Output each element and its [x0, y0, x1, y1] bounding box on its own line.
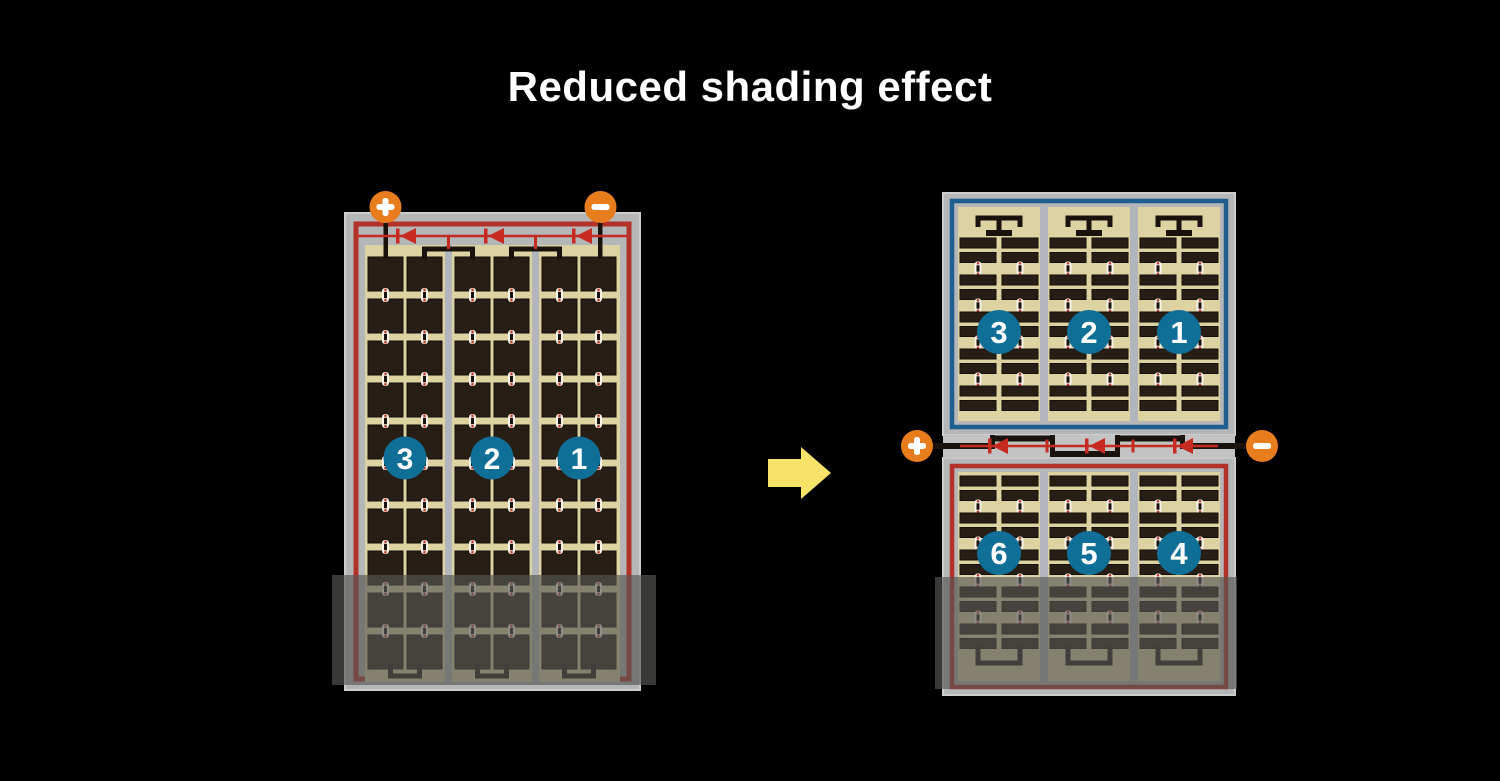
shade-overlay: [935, 577, 1237, 689]
half-cut-cell: [960, 275, 996, 285]
cell-connector-bar: [597, 418, 600, 424]
half-cut-cell: [1140, 386, 1176, 396]
junction-tick: [1046, 440, 1049, 453]
half-cut-cell: [1002, 275, 1038, 285]
half-cut-cell: [1182, 275, 1218, 285]
cell-connector-dot: [1019, 262, 1022, 265]
bypass-diode-icon: [572, 229, 576, 244]
cell-connector-dot: [510, 541, 513, 544]
cell-connector-bar: [1157, 265, 1160, 271]
half-cut-cell: [1002, 364, 1038, 374]
cell-connector-bar: [471, 292, 474, 298]
cell-connector-bar: [423, 544, 426, 550]
cell-connector-dot: [1199, 574, 1202, 577]
half-cut-cell: [1002, 513, 1038, 523]
solar-cell: [407, 257, 442, 291]
cell-connector-bar: [384, 544, 387, 550]
cell-connector-dot: [558, 499, 561, 502]
cell-connector-bar: [1199, 503, 1202, 509]
solar-cell: [368, 341, 403, 375]
solar-cell: [407, 299, 442, 333]
cell-connector-dot: [471, 415, 474, 418]
cell-connector-dot: [1067, 574, 1070, 577]
top-string-connector: [1087, 218, 1092, 232]
top-string-connector: [1076, 230, 1102, 236]
solar-cell: [494, 383, 529, 417]
half-cut-cell: [960, 253, 996, 263]
cell-connector-dot: [597, 341, 600, 344]
cell-connector-dot: [423, 299, 426, 302]
cell-connector-dot: [558, 425, 561, 428]
terminal-symbol: [914, 437, 920, 455]
cell-connector-dot: [558, 341, 561, 344]
cell-connector-dot: [597, 499, 600, 502]
half-cut-cell: [1092, 386, 1128, 396]
half-cut-cell: [960, 290, 996, 300]
half-cut-cell: [1002, 238, 1038, 248]
cell-connector-dot: [597, 551, 600, 554]
cell-connector-dot: [1157, 574, 1160, 577]
cell-connector-dot: [510, 383, 513, 386]
cell-connector-bar: [597, 502, 600, 508]
cell-connector-bar: [558, 502, 561, 508]
half-cut-cell: [1002, 290, 1038, 300]
half-cut-cell: [960, 513, 996, 523]
cell-connector-bar: [558, 292, 561, 298]
cell-connector-dot: [510, 289, 513, 292]
cell-connector-bar: [597, 292, 600, 298]
transition-arrow: [762, 442, 837, 504]
half-cut-cell: [1182, 364, 1218, 374]
cell-connector-bar: [384, 376, 387, 382]
cell-connector-dot: [1157, 537, 1160, 540]
cell-connector-dot: [1019, 500, 1022, 503]
cell-connector-bar: [1067, 503, 1070, 509]
cell-connector-bar: [1157, 503, 1160, 509]
half-cut-cell: [960, 238, 996, 248]
half-cut-cell: [1140, 253, 1176, 263]
cell-connector-dot: [471, 383, 474, 386]
cell-connector-dot: [384, 383, 387, 386]
half-cut-cell: [1050, 401, 1086, 411]
cell-connector-dot: [558, 551, 561, 554]
solar-cell: [494, 257, 529, 291]
string-number: 4: [1170, 536, 1188, 571]
solar-cell: [368, 299, 403, 333]
half-cut-cell: [1092, 364, 1128, 374]
half-cut-cell: [1092, 513, 1128, 523]
junction-tick: [534, 236, 537, 249]
string-number: 1: [1170, 315, 1187, 350]
half-cut-cell: [1140, 476, 1176, 486]
half-cut-cell: [960, 476, 996, 486]
solar-cell: [455, 341, 490, 375]
half-cut-cell: [1182, 491, 1218, 501]
solar-cell: [494, 299, 529, 333]
half-cut-cell: [1002, 386, 1038, 396]
cell-connector-bar: [1157, 376, 1160, 382]
half-cut-cell: [1140, 401, 1176, 411]
half-cut-cell: [1002, 491, 1038, 501]
cell-connector-dot: [558, 541, 561, 544]
solar-cell: [542, 257, 577, 291]
cell-connector-bar: [558, 376, 561, 382]
cell-connector-dot: [597, 299, 600, 302]
cell-connector-dot: [510, 551, 513, 554]
bypass-diode-icon: [1173, 439, 1177, 454]
cell-connector-dot: [423, 551, 426, 554]
cell-connector-bar: [423, 418, 426, 424]
terminal-symbol: [1253, 443, 1271, 449]
cell-connector-bar: [384, 418, 387, 424]
cell-connector-dot: [1067, 262, 1070, 265]
solar-cell: [494, 509, 529, 543]
cell-connector-bar: [977, 376, 980, 382]
cell-connector-dot: [423, 499, 426, 502]
cell-connector-dot: [1109, 373, 1112, 376]
cell-connector-dot: [977, 574, 980, 577]
cell-connector-dot: [1109, 299, 1112, 302]
cell-connector-dot: [1019, 373, 1022, 376]
cell-connector-dot: [384, 299, 387, 302]
cell-connector-bar: [510, 334, 513, 340]
cell-connector-dot: [384, 541, 387, 544]
cell-connector-dot: [471, 425, 474, 428]
half-cut-cell: [1140, 275, 1176, 285]
cell-connector-dot: [977, 299, 980, 302]
half-cut-cell: [960, 364, 996, 374]
cell-connector-dot: [1199, 262, 1202, 265]
string-number: 3: [990, 315, 1007, 350]
cell-connector-bar: [558, 544, 561, 550]
cell-connector-dot: [977, 262, 980, 265]
solar-cell: [455, 509, 490, 543]
cell-connector-dot: [471, 499, 474, 502]
top-string-connector: [997, 218, 1002, 232]
cell-connector-bar: [558, 418, 561, 424]
top-string-connector: [986, 230, 1012, 236]
half-cut-cell: [1050, 364, 1086, 374]
cell-connector-dot: [1019, 537, 1022, 540]
cell-connector-bar: [977, 265, 980, 271]
half-cut-cell: [1182, 513, 1218, 523]
cell-connector-dot: [384, 415, 387, 418]
cell-connector-bar: [1019, 265, 1022, 271]
cell-connector-bar: [510, 502, 513, 508]
cell-connector-dot: [423, 383, 426, 386]
cell-connector-bar: [384, 334, 387, 340]
solar-cell: [407, 509, 442, 543]
solar-cell: [581, 509, 616, 543]
cell-connector-bar: [597, 334, 600, 340]
cell-connector-dot: [384, 341, 387, 344]
cell-connector-dot: [471, 551, 474, 554]
half-cut-cell: [1092, 491, 1128, 501]
half-cut-cell: [960, 401, 996, 411]
cell-connector-dot: [423, 425, 426, 428]
bus-bar: [990, 436, 1055, 442]
cell-connector-dot: [384, 331, 387, 334]
half-cut-cell: [1140, 290, 1176, 300]
bypass-diode-icon: [484, 229, 488, 244]
cell-connector-dot: [1109, 500, 1112, 503]
cell-connector-dot: [1199, 299, 1202, 302]
cell-connector-bar: [977, 503, 980, 509]
solar-cell: [542, 341, 577, 375]
cell-connector-dot: [423, 373, 426, 376]
half-cut-cell: [1092, 253, 1128, 263]
cell-connector-dot: [977, 500, 980, 503]
cell-connector-bar: [423, 292, 426, 298]
cell-connector-bar: [558, 334, 561, 340]
cell-connector-dot: [423, 331, 426, 334]
half-cut-cell: [1092, 275, 1128, 285]
cell-connector-bar: [471, 376, 474, 382]
cell-connector-dot: [423, 415, 426, 418]
cell-connector-dot: [1199, 500, 1202, 503]
half-cut-cell: [960, 386, 996, 396]
cell-connector-bar: [423, 334, 426, 340]
half-cut-cell: [1182, 476, 1218, 486]
cell-connector-dot: [510, 373, 513, 376]
half-cut-cell: [1002, 476, 1038, 486]
solar-cell: [455, 383, 490, 417]
cell-connector-dot: [597, 425, 600, 428]
half-cut-cell: [1050, 275, 1086, 285]
cell-connector-dot: [558, 373, 561, 376]
cell-connector-bar: [1157, 302, 1160, 308]
cell-connector-dot: [597, 383, 600, 386]
string-number: 3: [397, 443, 414, 476]
half-cut-cell: [1182, 253, 1218, 263]
solar-cell: [455, 257, 490, 291]
solar-cell: [368, 257, 403, 291]
cell-connector-dot: [423, 341, 426, 344]
half-cut-cell: [1002, 401, 1038, 411]
cell-connector-dot: [558, 415, 561, 418]
cell-connector-bar: [471, 334, 474, 340]
cell-connector-dot: [558, 331, 561, 334]
cell-connector-dot: [471, 509, 474, 512]
half-cut-cell: [1050, 513, 1086, 523]
solar-cell: [542, 299, 577, 333]
half-cut-cell: [960, 491, 996, 501]
cell-connector-bar: [1109, 265, 1112, 271]
cell-connector-bar: [597, 544, 600, 550]
cell-connector-dot: [471, 341, 474, 344]
full-cell-module-diagram: 321: [330, 185, 660, 700]
cell-connector-dot: [471, 373, 474, 376]
top-string-connector: [1166, 230, 1192, 236]
cell-connector-bar: [471, 418, 474, 424]
solar-cell: [542, 383, 577, 417]
half-cut-cell: [1092, 476, 1128, 486]
cell-connector-dot: [597, 331, 600, 334]
cell-connector-bar: [471, 544, 474, 550]
bypass-diode-icon: [988, 439, 992, 454]
cell-connector-bar: [1019, 302, 1022, 308]
cell-connector-dot: [510, 299, 513, 302]
cell-connector-dot: [510, 425, 513, 428]
cell-connector-bar: [1199, 376, 1202, 382]
half-cut-cell: [1092, 401, 1128, 411]
cell-connector-dot: [471, 289, 474, 292]
shade-overlay: [332, 575, 656, 685]
string-divider: [1040, 207, 1048, 421]
solar-cell: [581, 383, 616, 417]
string-number: 1: [571, 443, 588, 476]
half-cut-cell: [1140, 238, 1176, 248]
cell-connector-bar: [1199, 302, 1202, 308]
cell-connector-bar: [1019, 503, 1022, 509]
solar-cell: [494, 341, 529, 375]
solar-cell: [368, 509, 403, 543]
cell-connector-dot: [597, 415, 600, 418]
cell-connector-dot: [471, 331, 474, 334]
solar-cell: [581, 257, 616, 291]
cell-connector-dot: [1157, 299, 1160, 302]
cell-connector-dot: [977, 373, 980, 376]
cell-connector-dot: [384, 425, 387, 428]
cell-connector-bar: [423, 502, 426, 508]
cell-connector-bar: [597, 376, 600, 382]
solar-cell: [455, 299, 490, 333]
terminal-symbol: [383, 198, 389, 216]
cell-connector-bar: [977, 302, 980, 308]
string-number: 2: [1080, 315, 1097, 350]
cell-connector-bar: [1109, 503, 1112, 509]
cell-connector-bar: [510, 376, 513, 382]
cell-connector-dot: [1157, 500, 1160, 503]
solar-cell: [407, 383, 442, 417]
cell-connector-dot: [1199, 537, 1202, 540]
half-cut-cell: [1182, 238, 1218, 248]
cell-connector-dot: [597, 373, 600, 376]
junction-tick: [447, 236, 450, 249]
string-number: 2: [484, 443, 501, 476]
half-cut-cell: [1182, 290, 1218, 300]
diagram-title: Reduced shading effect: [0, 63, 1500, 111]
cell-connector-bar: [510, 418, 513, 424]
half-cut-cell: [1140, 364, 1176, 374]
solar-cell: [542, 509, 577, 543]
top-string-connector: [1177, 218, 1182, 232]
cell-connector-dot: [597, 289, 600, 292]
junction-tick: [1132, 440, 1135, 453]
cell-connector-dot: [384, 509, 387, 512]
cell-connector-dot: [384, 499, 387, 502]
cell-connector-dot: [1199, 373, 1202, 376]
cell-connector-dot: [1067, 537, 1070, 540]
cell-connector-dot: [558, 299, 561, 302]
half-cut-cell: [1050, 253, 1086, 263]
diagram-canvas: Reduced shading effect 321 321654: [0, 0, 1500, 781]
half-cut-cell: [1050, 290, 1086, 300]
cell-connector-dot: [1019, 574, 1022, 577]
cell-connector-dot: [510, 499, 513, 502]
cell-connector-bar: [384, 502, 387, 508]
cell-connector-dot: [384, 289, 387, 292]
half-cut-cell: [1140, 491, 1176, 501]
cell-connector-dot: [558, 509, 561, 512]
bypass-diode-icon: [396, 229, 400, 244]
cell-connector-dot: [597, 509, 600, 512]
cell-connector-bar: [1109, 376, 1112, 382]
cell-connector-dot: [510, 509, 513, 512]
cell-connector-dot: [1109, 262, 1112, 265]
half-cut-cell: [1002, 253, 1038, 263]
cell-connector-dot: [471, 299, 474, 302]
cell-connector-bar: [423, 376, 426, 382]
cell-connector-bar: [1019, 376, 1022, 382]
cell-connector-dot: [977, 537, 980, 540]
bypass-diode-icon: [1085, 439, 1089, 454]
terminal-symbol: [592, 204, 610, 210]
cell-connector-bar: [510, 544, 513, 550]
half-cut-cell: [1050, 476, 1086, 486]
cell-connector-bar: [1067, 265, 1070, 271]
half-cut-cell: [1092, 238, 1128, 248]
cell-connector-dot: [1019, 299, 1022, 302]
half-cut-module-diagram: 321654: [900, 180, 1280, 710]
cell-connector-bar: [1109, 302, 1112, 308]
cell-connector-dot: [1109, 537, 1112, 540]
cell-connector-dot: [510, 415, 513, 418]
cell-connector-dot: [510, 331, 513, 334]
cell-connector-dot: [1157, 373, 1160, 376]
half-cut-cell: [1092, 290, 1128, 300]
cell-connector-bar: [384, 292, 387, 298]
cell-connector-dot: [384, 373, 387, 376]
cell-connector-dot: [558, 383, 561, 386]
half-cut-cell: [1182, 386, 1218, 396]
cell-connector-dot: [558, 289, 561, 292]
cell-connector-bar: [1199, 265, 1202, 271]
string-number: 5: [1080, 536, 1097, 571]
cell-connector-dot: [510, 341, 513, 344]
cell-connector-dot: [597, 541, 600, 544]
cell-connector-dot: [1067, 373, 1070, 376]
half-cut-cell: [1182, 401, 1218, 411]
cell-connector-dot: [423, 541, 426, 544]
cell-connector-dot: [1067, 500, 1070, 503]
half-cut-cell: [1050, 386, 1086, 396]
cell-connector-dot: [1109, 574, 1112, 577]
cell-connector-dot: [471, 541, 474, 544]
cell-connector-bar: [1067, 376, 1070, 382]
cell-connector-dot: [423, 509, 426, 512]
cell-connector-dot: [384, 551, 387, 554]
solar-cell: [581, 299, 616, 333]
string-number: 6: [990, 536, 1007, 571]
cell-connector-bar: [1067, 302, 1070, 308]
right-arrow-icon: [768, 447, 831, 499]
cell-connector-bar: [471, 502, 474, 508]
half-cut-cell: [1140, 513, 1176, 523]
solar-cell: [581, 341, 616, 375]
half-cut-cell: [1050, 238, 1086, 248]
cell-connector-dot: [1157, 262, 1160, 265]
solar-cell: [407, 341, 442, 375]
solar-cell: [368, 383, 403, 417]
string-divider: [1130, 207, 1138, 421]
cell-connector-dot: [1067, 299, 1070, 302]
cell-connector-bar: [510, 292, 513, 298]
cell-connector-dot: [423, 289, 426, 292]
half-cut-cell: [1050, 491, 1086, 501]
